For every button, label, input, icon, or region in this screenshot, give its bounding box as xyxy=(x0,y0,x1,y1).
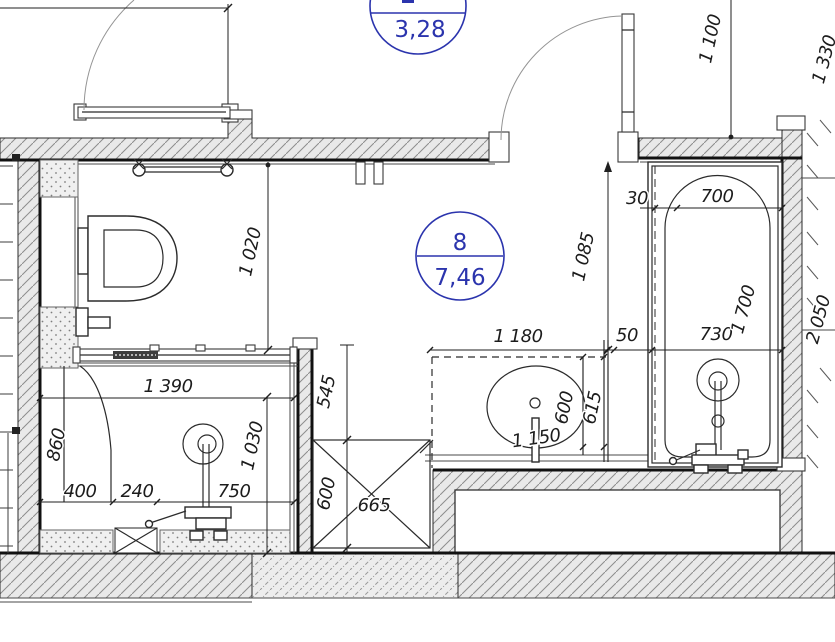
dim-400: 400 xyxy=(64,481,97,502)
door-jamb-right xyxy=(618,132,638,162)
toilet xyxy=(76,216,177,336)
room-number-main: 8 xyxy=(453,230,468,256)
dim-1330: 1 330 xyxy=(808,33,835,86)
dim-860: 860 xyxy=(43,427,70,464)
room-label-top: 3,28 xyxy=(370,0,466,54)
dim-240: 240 xyxy=(121,481,154,502)
toilet-cistern xyxy=(78,228,88,274)
dim-1020: 1 020 xyxy=(235,226,266,278)
dim-1180: 1 180 xyxy=(493,326,542,347)
dim-600-niche: 600 xyxy=(313,476,340,513)
right-wall-top-cap xyxy=(777,116,805,130)
wall-outlet-arm xyxy=(88,317,110,328)
dim-30: 30 xyxy=(626,188,648,209)
room-label-main: 8 7,46 xyxy=(416,212,504,300)
sink-faucet-hole xyxy=(530,398,540,408)
curb-block-left xyxy=(40,530,113,553)
dim-600-sink: 600 xyxy=(551,390,578,427)
towel-rail xyxy=(133,159,233,176)
toilet-bowl xyxy=(88,216,177,301)
crossed-box-small xyxy=(115,528,157,553)
wall-right xyxy=(782,128,802,462)
dim-50: 50 xyxy=(616,325,638,346)
shower-screen xyxy=(73,345,297,363)
wall-top-left xyxy=(0,118,497,160)
wall-partition xyxy=(298,348,312,555)
dim-1085: 1 085 xyxy=(568,231,599,283)
dim-2050: 2 050 xyxy=(802,293,835,346)
wall-niche-opening xyxy=(455,490,780,553)
dim-750: 750 xyxy=(218,481,251,502)
doors xyxy=(74,0,634,140)
floor-plan-drawing: 1 100 1 330 2 050 1 020 1 085 30 700 1 1… xyxy=(0,0,835,642)
right-area-ticks xyxy=(807,120,831,468)
dim-665: 665 xyxy=(358,495,391,516)
wall-bottom-band-right xyxy=(458,553,835,598)
left-room-ticks xyxy=(0,154,20,553)
room-area-main: 7,46 xyxy=(434,265,485,291)
dim-1390: 1 390 xyxy=(143,376,192,397)
door-swing-arc-left xyxy=(84,0,134,110)
pipe-stubs xyxy=(356,162,383,184)
duct-block-top xyxy=(40,160,78,197)
door-main xyxy=(501,14,634,140)
door-top-left xyxy=(74,0,230,120)
floor-plan: 1 100 1 330 2 050 1 020 1 085 30 700 1 1… xyxy=(0,0,835,642)
dim-1100: 1 100 xyxy=(695,13,726,65)
dim-1030: 1 030 xyxy=(237,420,268,472)
wall-outlet-box xyxy=(76,308,88,336)
bathtub xyxy=(648,162,782,473)
dim-1150: 1 150 xyxy=(510,425,562,453)
wall-bottom-band-left xyxy=(0,553,252,598)
duct-block-mid xyxy=(40,307,78,368)
wall-bottom-band-mid xyxy=(252,553,458,598)
dim-545: 545 xyxy=(313,374,340,411)
wall-left xyxy=(18,160,40,555)
door-jamb-left xyxy=(489,132,509,162)
wall-top-right xyxy=(638,138,802,158)
dim-700: 700 xyxy=(701,186,734,207)
room-area-top: 3,28 xyxy=(394,17,445,43)
door-swing-arc-main xyxy=(501,16,622,140)
door-leaf xyxy=(622,14,634,132)
